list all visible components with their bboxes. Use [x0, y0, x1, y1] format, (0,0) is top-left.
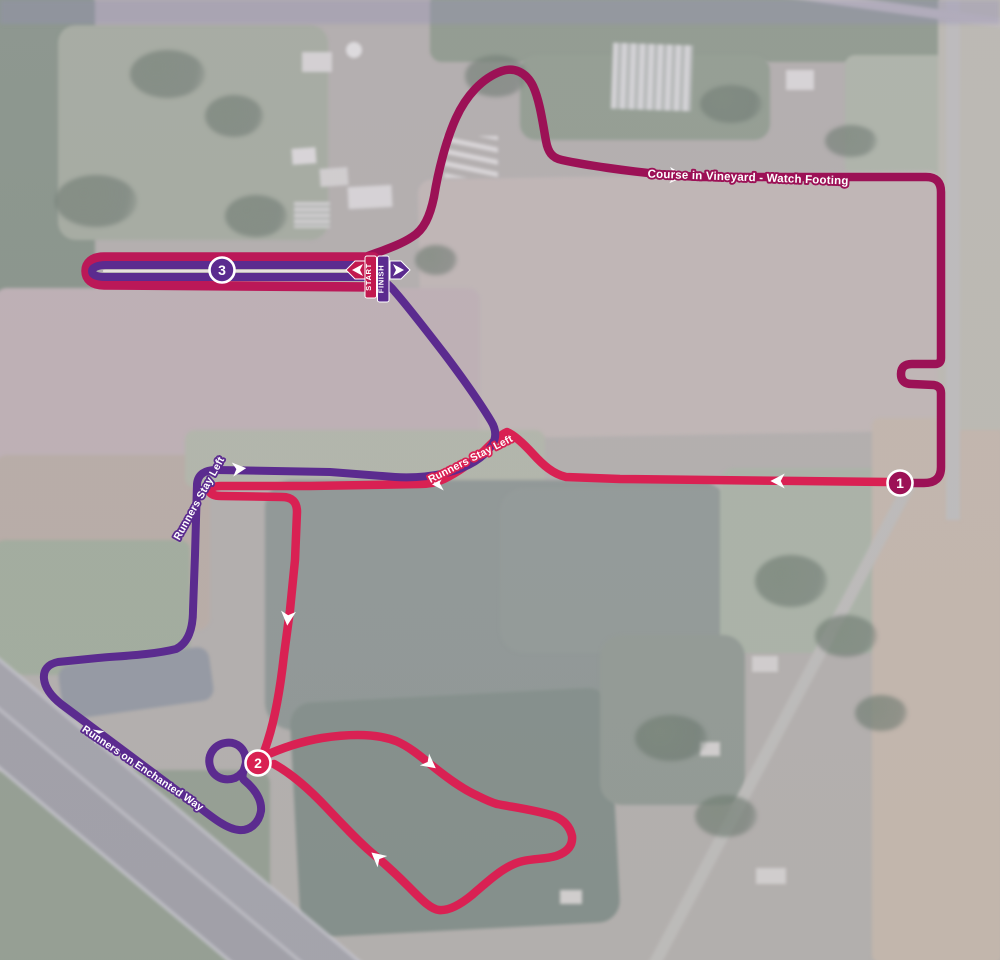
mile-marker-1: 1: [888, 471, 913, 496]
label-course-in-vineyard: Course in Vineyard - Watch Footing: [647, 168, 848, 187]
mile-marker-2-number: 2: [254, 755, 262, 771]
course-path-crimson: [210, 432, 888, 910]
course-map: START FINISH 1 2 3 Course in Vineyard - …: [0, 0, 1000, 960]
label-runners-stay-left-west: Runners Stay Left: [426, 433, 515, 486]
course-path-maroon: [368, 70, 941, 483]
mile-marker-2: 2: [246, 751, 271, 776]
mile-markers: 1 2 3: [210, 258, 913, 776]
mile-marker-3: 3: [210, 258, 235, 283]
finish-banner-label: FINISH: [377, 265, 386, 294]
start-banner-label: START: [364, 263, 373, 291]
label-runners-on-enchanted-way: Runners on Enchanted Way: [80, 723, 206, 813]
course-overlay: START FINISH 1 2 3 Course in Vineyard - …: [0, 0, 1000, 960]
mile-marker-3-number: 3: [218, 262, 226, 278]
mile-marker-1-number: 1: [896, 475, 904, 491]
